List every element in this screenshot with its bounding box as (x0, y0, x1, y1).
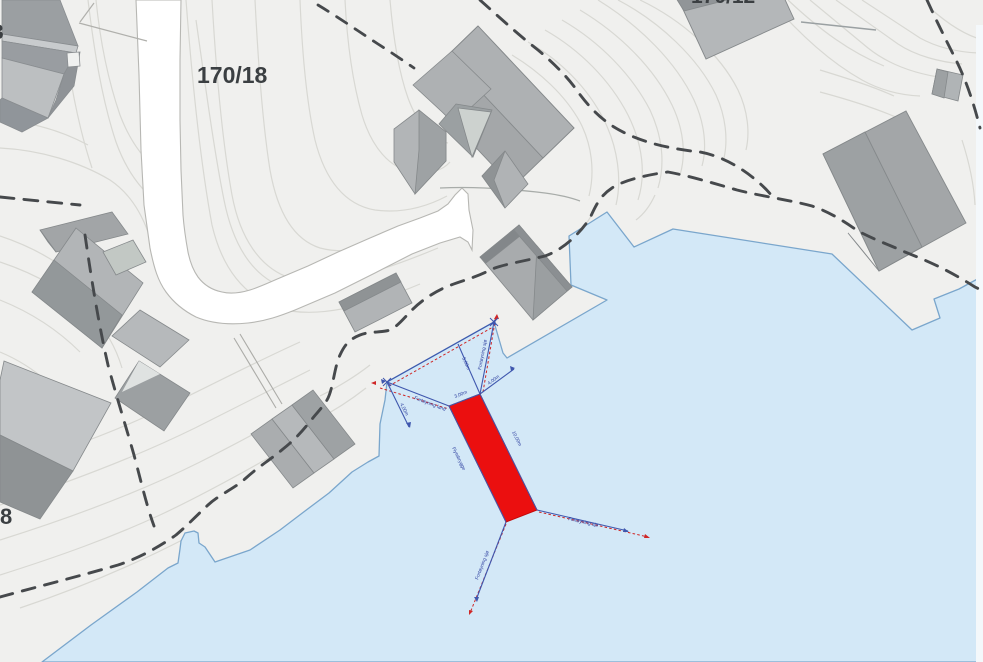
svg-text:3: 3 (0, 21, 4, 44)
svg-text:170/18: 170/18 (197, 62, 268, 88)
svg-text:8: 8 (0, 504, 12, 529)
svg-text:170/12: 170/12 (691, 0, 755, 8)
